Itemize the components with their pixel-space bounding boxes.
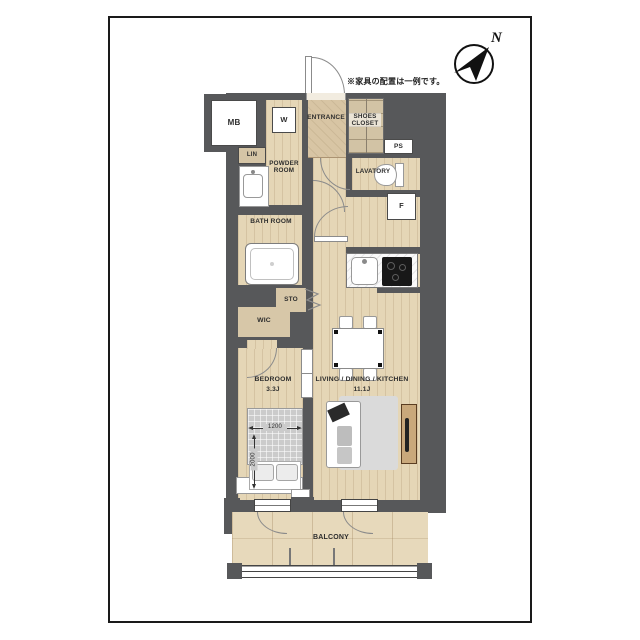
cooktop-burner-2 [399,264,406,271]
tv-board [401,404,417,464]
sofa-cushion [337,426,352,446]
table-leg [334,363,338,367]
entrance-label: ENTRANCE [306,114,346,121]
entrance-floor [308,100,346,158]
bed-depth-label: 2000 [251,448,258,470]
bedroom-label: BEDROOM [243,376,303,384]
vanity-sink [243,174,263,198]
balcony-railing [228,565,432,579]
table-leg [378,363,382,367]
bed-pillow [276,464,298,481]
shoes-closet-label: SHOES CLOSET [349,113,381,127]
wall-between-windows [291,497,314,512]
storage-label: STO [276,296,306,303]
ldk-size-label: 11.1J [312,386,412,393]
balcony-label: BALCONY [301,534,361,542]
linen-closet: LIN [238,147,266,164]
compass-north-label: N [490,30,503,46]
lavatory-label: LAVATORY [348,168,398,175]
table-leg [378,330,382,334]
floor-plan-page: N ※家具の配置は一例です。 MB W LIN PS F [0,0,640,640]
bathtub-drain [270,262,274,266]
washer-space: W [272,107,296,133]
table-leg [334,330,338,334]
dimension-arrowhead [248,426,253,430]
entrance-threshold [306,93,346,100]
tv [405,418,409,452]
window-bedroom [254,499,291,512]
cooktop-burner-1 [387,262,395,270]
ldk-label: LIVING / DINING / KITCHEN [312,376,412,384]
entrance-door-leaf [305,56,312,95]
window-living [341,499,378,512]
meter-box: MB [211,100,257,146]
railing-post-left [227,563,242,579]
railing-post-right [417,563,432,579]
dimension-arrowhead [297,426,302,430]
railing-support [289,548,291,566]
fridge-space: F [387,193,416,220]
vanity-faucet [251,170,255,174]
bed-width-label: 1200 [263,424,287,431]
railing-support [333,548,335,566]
bedroom-size-label: 3.3J [243,386,303,393]
kitchen-faucet [362,259,367,264]
dimension-arrowhead [252,434,256,439]
sofa-cushion [337,447,352,464]
powder-room-label: POWDER ROOM [264,160,304,174]
wic-label: WIC [238,317,290,325]
bathroom-label: BATH ROOM [248,218,294,225]
dimension-arrowhead [252,484,256,489]
dining-table [332,328,384,369]
cooktop [382,257,412,286]
pipe-space: PS [384,139,413,154]
cooktop-burner-3 [392,274,399,281]
storage-folding-door [304,288,326,311]
furniture-note: ※家具の配置は一例です。 [347,77,467,86]
